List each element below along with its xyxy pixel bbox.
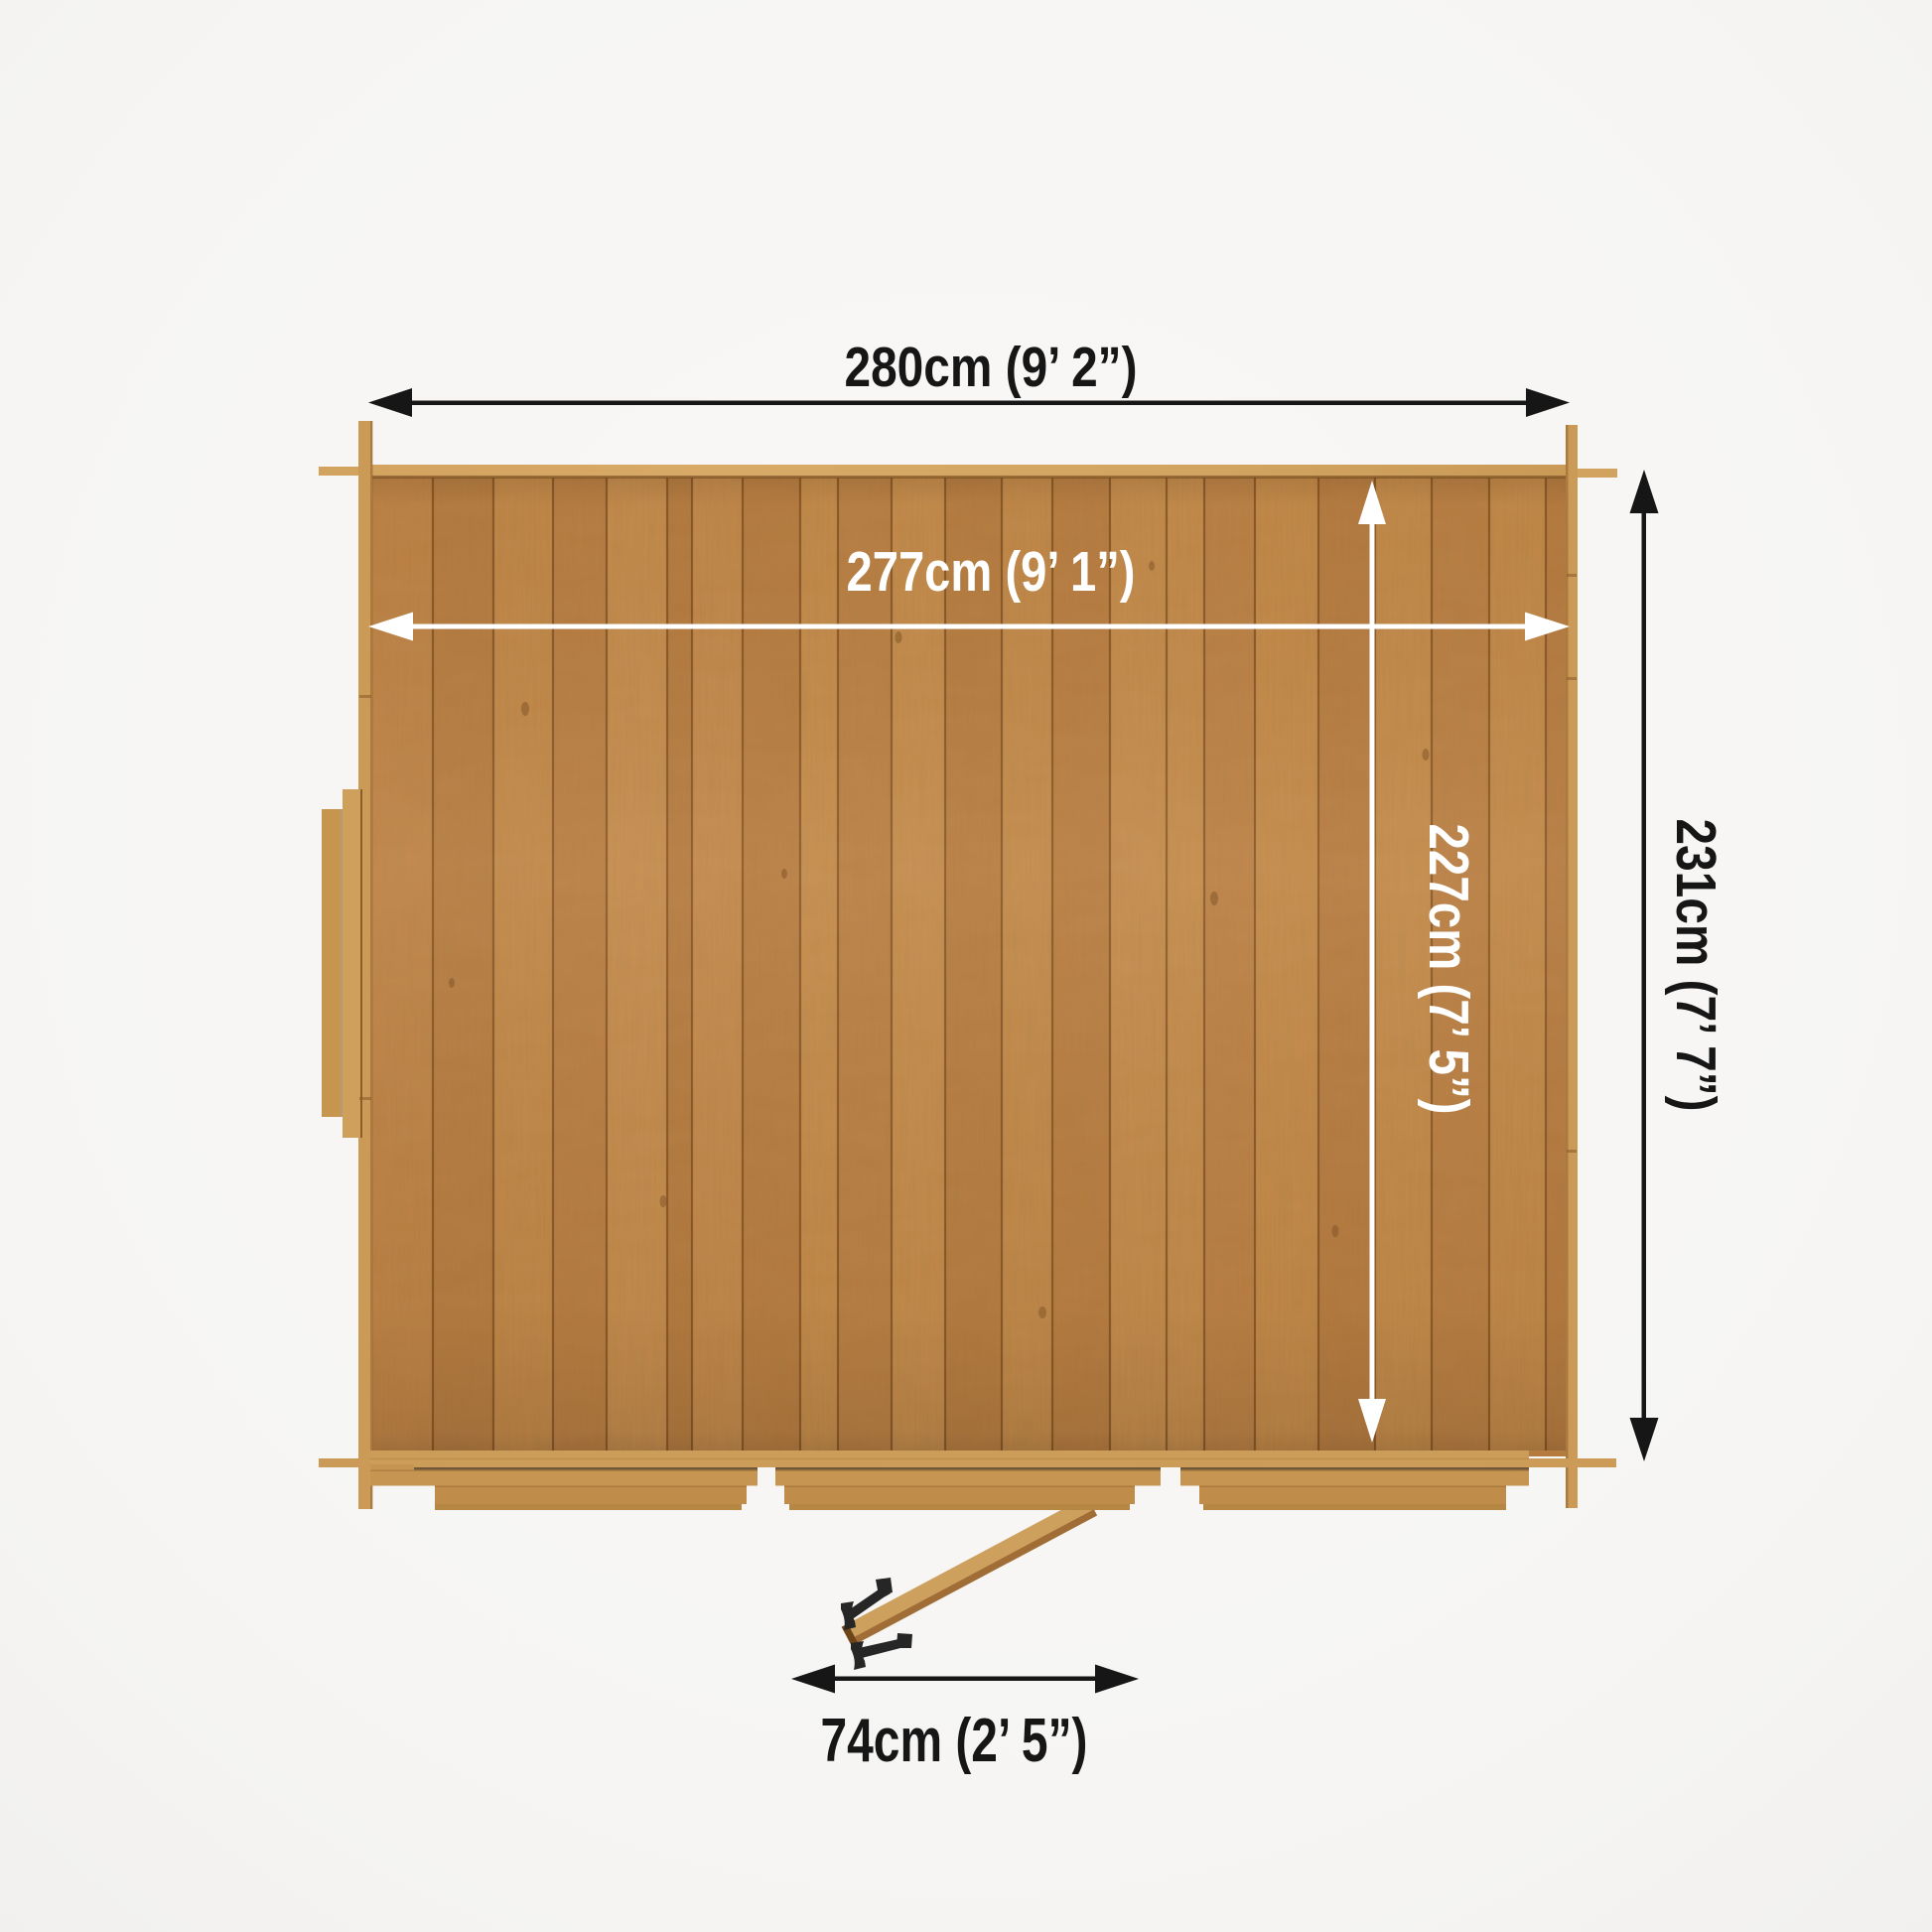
svg-text:231cm (7’ 7”): 231cm (7’ 7”) (1664, 819, 1727, 1112)
svg-text:74cm (2’ 5”): 74cm (2’ 5”) (821, 1707, 1088, 1775)
svg-text:227cm (7’ 5”): 227cm (7’ 5”) (1417, 824, 1480, 1115)
svg-text:280cm (9’ 2”): 280cm (9’ 2”) (845, 336, 1138, 399)
svg-text:277cm (9’ 1”): 277cm (9’ 1”) (847, 540, 1136, 604)
